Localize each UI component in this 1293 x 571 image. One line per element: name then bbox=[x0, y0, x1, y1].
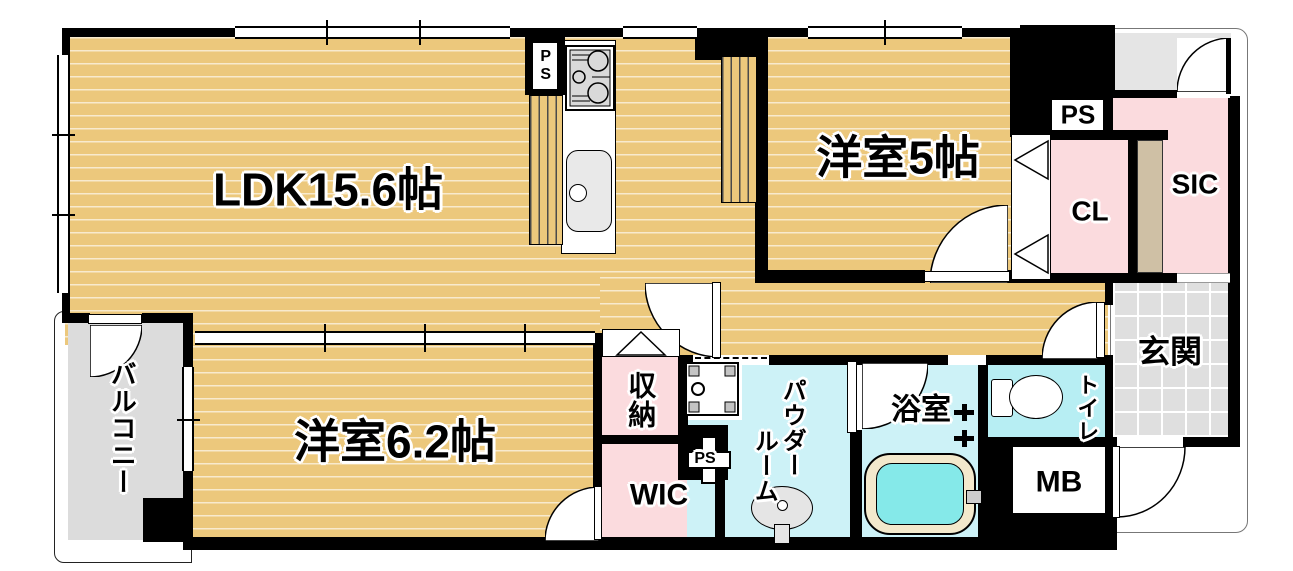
partition-tick bbox=[524, 324, 526, 352]
door-leaf bbox=[712, 282, 721, 358]
wall bbox=[1020, 98, 1050, 134]
label-ldk: LDK15.6帖 bbox=[213, 167, 443, 214]
door-arc-entrance-exterior bbox=[1117, 447, 1187, 519]
sliding-partition bbox=[195, 331, 595, 345]
shoe-cabinet bbox=[1137, 140, 1163, 273]
wall bbox=[1228, 96, 1240, 447]
door-leaf bbox=[1226, 38, 1231, 94]
partition-tick bbox=[424, 324, 426, 352]
window bbox=[623, 26, 697, 39]
wall bbox=[1183, 437, 1240, 447]
wall bbox=[593, 333, 602, 489]
door-leaf bbox=[88, 314, 142, 324]
window-tick bbox=[884, 20, 886, 45]
door-opening bbox=[1177, 273, 1230, 283]
door-leaf bbox=[1112, 446, 1120, 518]
label-ps-kitchen: PS bbox=[537, 48, 553, 84]
door-arc-hall-genkan bbox=[1042, 302, 1098, 359]
wall bbox=[1010, 37, 1020, 137]
door-opening bbox=[948, 355, 986, 365]
wall bbox=[1013, 513, 1117, 550]
dashed-line bbox=[695, 357, 767, 359]
wall bbox=[1105, 98, 1113, 134]
wall bbox=[602, 435, 682, 444]
wall bbox=[960, 28, 1020, 37]
wall bbox=[142, 313, 193, 323]
label-bed5: 洋室5帖 bbox=[816, 135, 980, 182]
floor-plan: LDK15.6帖 洋室5帖 洋室6.2帖 CL SIC PS PS PS 玄関 … bbox=[0, 0, 1293, 571]
wall bbox=[768, 28, 810, 37]
door-arc-bed62 bbox=[545, 487, 599, 541]
gas-stove-icon bbox=[565, 45, 615, 111]
wall bbox=[62, 28, 235, 37]
storage-folding-door bbox=[602, 329, 680, 357]
door-leaf bbox=[594, 486, 602, 540]
cl-folding-door bbox=[1011, 135, 1051, 279]
wall bbox=[1113, 90, 1177, 98]
wall bbox=[62, 313, 90, 323]
wall bbox=[765, 270, 925, 283]
window-tick bbox=[52, 214, 75, 216]
shower-fixture-icon bbox=[950, 404, 980, 450]
label-genkan: 玄関 bbox=[1138, 336, 1202, 369]
wall bbox=[510, 28, 625, 37]
label-powder-1: パウダー bbox=[779, 378, 803, 478]
label-storage: 収納 bbox=[626, 371, 655, 429]
wall bbox=[985, 437, 1013, 550]
wash-basin-drain bbox=[777, 500, 788, 511]
label-balcony: バルコニー bbox=[109, 361, 136, 496]
door-leaf bbox=[1096, 302, 1105, 358]
door-opening bbox=[1117, 437, 1183, 447]
wall bbox=[1105, 355, 1113, 443]
label-ps-top: PS bbox=[1061, 102, 1096, 129]
wall bbox=[850, 430, 862, 542]
washing-machine-pan-icon bbox=[685, 362, 739, 416]
label-sic: SIC bbox=[1172, 171, 1219, 200]
faucet-icon bbox=[569, 184, 587, 202]
wall bbox=[1020, 25, 1115, 98]
bathtub-faucet bbox=[966, 490, 982, 504]
kitchen-panel bbox=[529, 95, 563, 245]
door-leaf bbox=[924, 271, 1010, 282]
wall bbox=[1128, 137, 1137, 277]
label-bath: 浴室 bbox=[891, 396, 951, 427]
folding-door-triangle bbox=[603, 330, 681, 358]
pillar bbox=[143, 498, 193, 542]
door-arc-entrance-porch bbox=[1177, 38, 1230, 92]
label-powder-2: ルーム bbox=[751, 429, 775, 504]
window-tick bbox=[326, 20, 328, 45]
label-ps-hall: PS bbox=[694, 451, 715, 467]
label-wic: WIC bbox=[630, 481, 688, 512]
label-mb: MB bbox=[1036, 468, 1083, 499]
partition-tick bbox=[324, 324, 326, 352]
bathtub-water bbox=[876, 463, 964, 525]
wall bbox=[62, 28, 70, 58]
wall bbox=[1105, 283, 1113, 305]
toilet-bowl-icon bbox=[1009, 375, 1063, 419]
window-tick bbox=[177, 419, 200, 421]
label-bed62: 洋室6.2帖 bbox=[294, 419, 496, 466]
wash-basin-pedestal bbox=[774, 524, 790, 544]
window bbox=[57, 55, 70, 293]
label-cl: CL bbox=[1071, 198, 1108, 227]
wall bbox=[183, 537, 1117, 550]
window bbox=[235, 26, 510, 39]
partition-panel bbox=[721, 56, 757, 203]
door-leaf bbox=[847, 361, 857, 433]
window-tick bbox=[419, 20, 421, 45]
label-toilet: トイレ bbox=[1075, 374, 1097, 443]
window-tick bbox=[52, 134, 75, 136]
folding-door-triangles bbox=[1012, 135, 1052, 279]
wall bbox=[183, 323, 193, 369]
